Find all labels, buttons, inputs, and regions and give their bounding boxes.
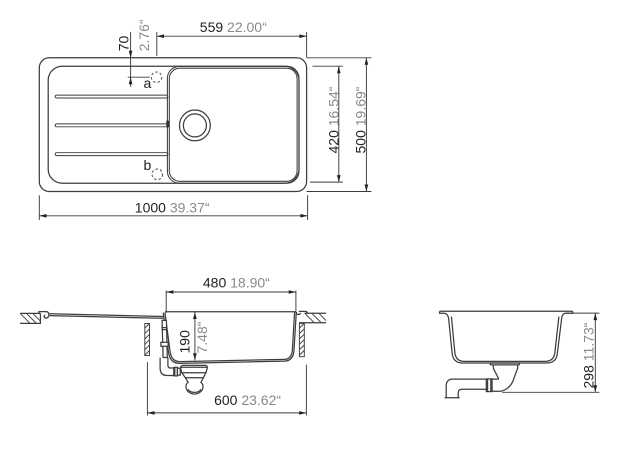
svg-text:1000 39.37“: 1000 39.37“ bbox=[135, 200, 210, 216]
svg-text:190: 190 bbox=[176, 330, 192, 354]
svg-text:2.76“: 2.76“ bbox=[136, 19, 152, 51]
svg-text:500 19.69“: 500 19.69“ bbox=[353, 86, 369, 153]
svg-text:7.48“: 7.48“ bbox=[194, 321, 210, 353]
svg-text:600 23.62“: 600 23.62“ bbox=[214, 392, 281, 408]
svg-text:559 22.00“: 559 22.00“ bbox=[200, 19, 267, 35]
svg-text:298 11.73“: 298 11.73“ bbox=[581, 322, 597, 388]
svg-text:b: b bbox=[144, 157, 152, 173]
svg-text:70: 70 bbox=[116, 36, 132, 52]
svg-text:420 16.54“: 420 16.54“ bbox=[325, 86, 341, 153]
svg-text:480 18.90“: 480 18.90“ bbox=[203, 274, 270, 290]
